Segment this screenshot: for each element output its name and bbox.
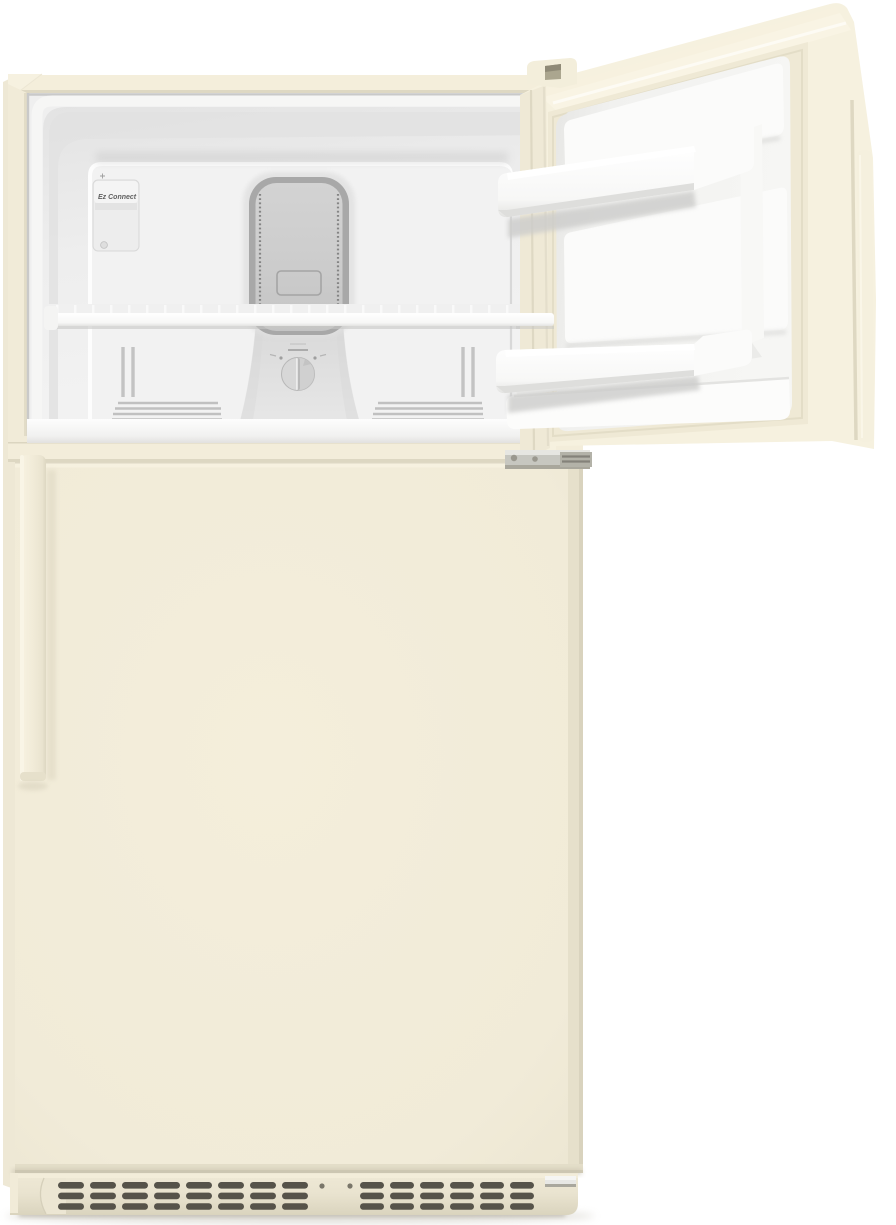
- svg-text:Ez Connect: Ez Connect: [98, 194, 137, 201]
